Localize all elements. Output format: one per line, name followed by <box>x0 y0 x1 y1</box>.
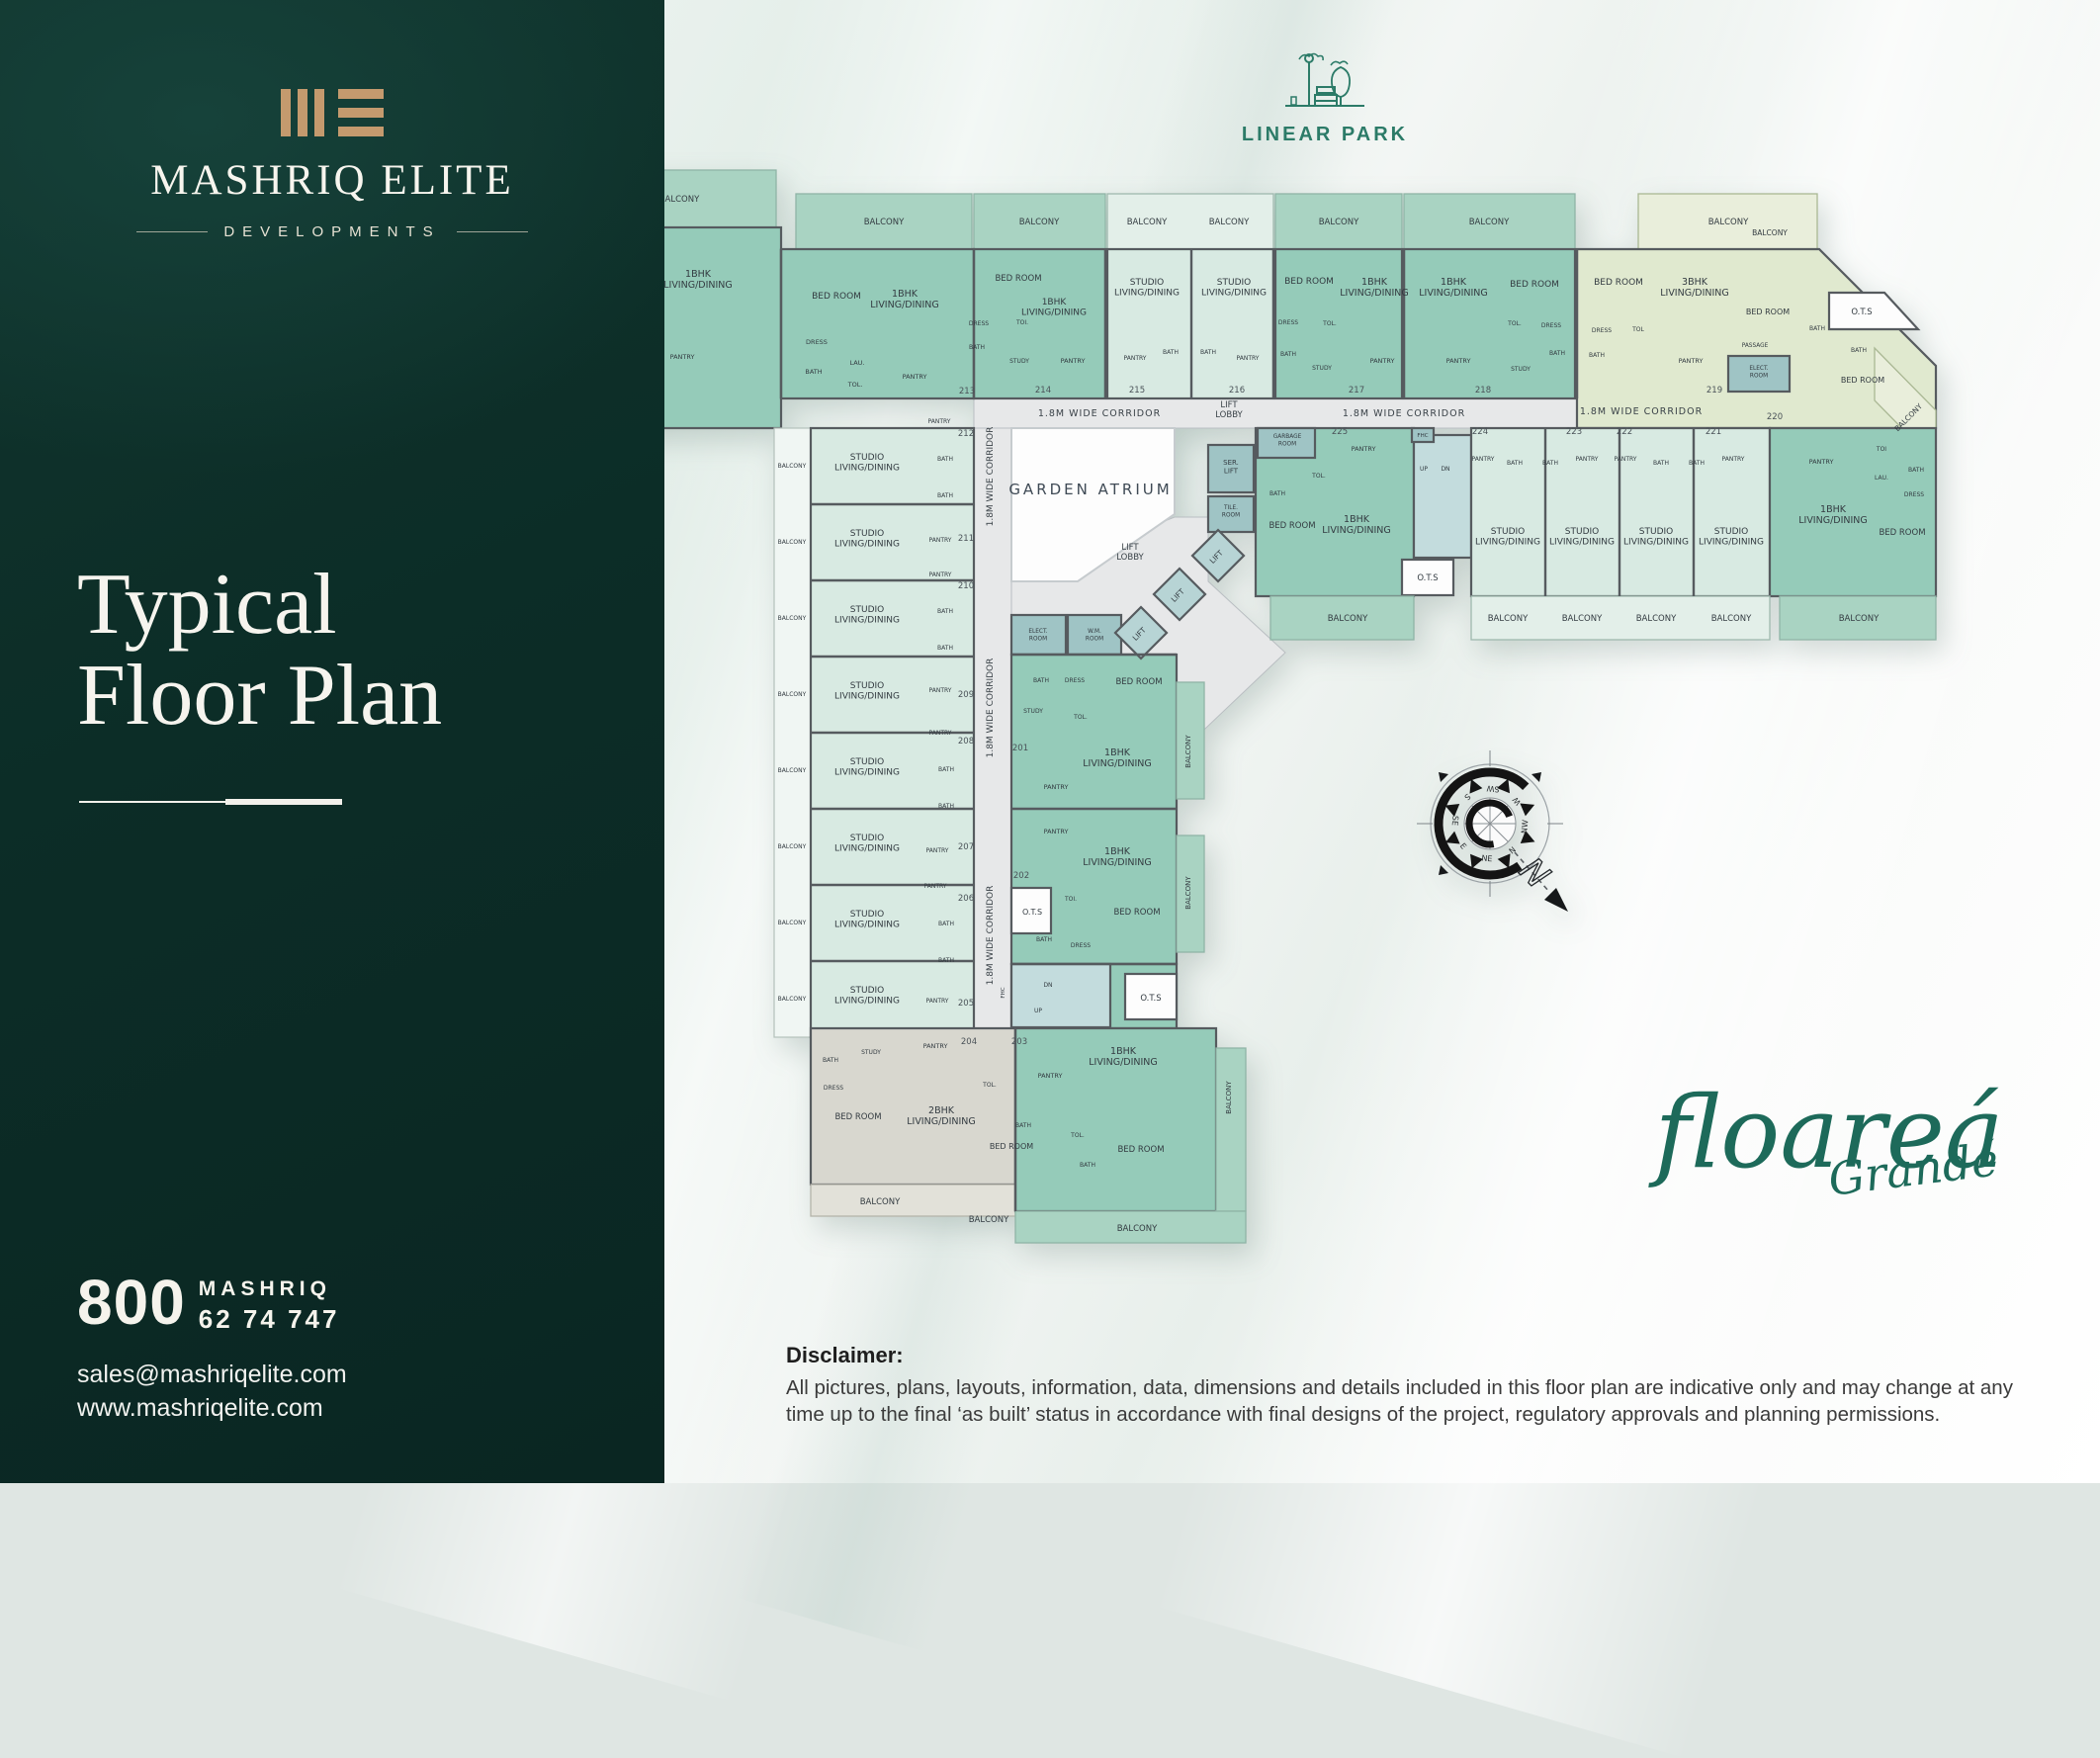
stairs <box>1011 964 1110 1027</box>
plan-label: BATH <box>1589 352 1605 359</box>
plan-label: PANTRY <box>1576 456 1599 463</box>
plan-label: BALCONY <box>1488 614 1529 624</box>
compass-direction: SW <box>1486 784 1500 794</box>
plan-label: PANTRY <box>1472 456 1495 463</box>
plan-label: BATH <box>1809 325 1825 332</box>
plan-label: BALCONY <box>778 920 807 926</box>
unit-213 <box>781 249 974 398</box>
plan-label: PANTRY <box>1124 355 1147 362</box>
compass-direction: E <box>1458 841 1468 851</box>
plan-label: BALCONY <box>1209 218 1250 227</box>
plan-label: BALCONY <box>659 195 700 205</box>
balcony <box>811 1185 1015 1216</box>
plan-label: TOL. <box>982 1082 997 1089</box>
plan-label: BALCONY <box>778 843 807 850</box>
plan-label: BALCONY <box>778 463 807 470</box>
unit-number: 208 <box>958 737 974 747</box>
plan-label: BALCONY <box>1752 228 1788 237</box>
unit-number: 218 <box>1475 386 1491 396</box>
unit-number: 214 <box>1035 386 1051 396</box>
plan-label: PANTRY <box>1446 357 1471 365</box>
linear-park-label: LINEAR PARK <box>1224 124 1426 146</box>
plan-label: BED ROOM <box>1284 277 1334 287</box>
plan-label: BED ROOM <box>1269 521 1315 531</box>
plan-label: TOL <box>1631 326 1644 333</box>
unit-number: 223 <box>1566 427 1582 437</box>
plan-label: STUDY <box>1511 366 1531 373</box>
plan-label: PANTRY <box>929 687 952 694</box>
plan-label: BALCONY <box>778 996 807 1003</box>
unit-number: 220 <box>1767 412 1783 422</box>
compass-rose-icon: NNEESESSWWNW N <box>1417 750 1568 912</box>
phone-number-large: 800 <box>77 1274 186 1332</box>
plan-label: BATH <box>937 608 953 615</box>
brand-logo <box>0 87 664 143</box>
service-elect <box>1011 615 1066 655</box>
plan-label: UP <box>1034 1008 1042 1014</box>
unit-number: 202 <box>1013 871 1029 881</box>
plan-label: ELECT.ROOM <box>1028 629 1047 642</box>
plan-label: TOL. <box>847 381 863 389</box>
plan-label: DRESS <box>824 1085 843 1092</box>
unit-number: 209 <box>958 690 974 700</box>
unit-number: 225 <box>1332 427 1348 437</box>
plan-label: TOI. <box>1015 319 1028 326</box>
disclaimer-heading: Disclaimer: <box>786 1343 2040 1368</box>
plan-label: O.T.S <box>1140 994 1161 1004</box>
unit-number: 201 <box>1012 744 1028 753</box>
plan-label: PANTRY <box>923 1042 948 1050</box>
plan-label: BED ROOM <box>1113 908 1160 918</box>
plan-label: BALCONY <box>860 1197 901 1207</box>
phone-digits: 62 74 747 <box>199 1304 340 1335</box>
plan-label: DRESS <box>1065 677 1085 684</box>
plan-label: PANTRY <box>1809 458 1834 466</box>
plan-label: BATH <box>1163 349 1179 356</box>
north-label: N <box>1512 850 1557 896</box>
plan-label: BATH <box>937 456 953 463</box>
plan-label: BATH <box>969 344 985 351</box>
plan-label: BATH <box>1033 677 1049 684</box>
plan-label: BATH <box>938 803 954 810</box>
plan-label: PANTRY <box>928 418 951 425</box>
plan-label: BED ROOM <box>1510 280 1559 290</box>
tagline-rule-right <box>457 231 528 232</box>
phone-block: 800 MASHRIQ 62 74 747 <box>77 1274 339 1335</box>
plan-label: STUDY <box>1312 365 1332 372</box>
unit-number: 213 <box>959 387 975 396</box>
plan-label: BED ROOM <box>1117 1145 1164 1155</box>
plan-label: DRESS <box>806 338 828 346</box>
page-title-line2: Floor Plan <box>77 651 442 742</box>
plan-label: BALCONY <box>1319 218 1359 227</box>
plan-label: PANTRY <box>926 847 949 854</box>
plan-label: BALCONY <box>1328 614 1368 624</box>
plan-label: PANTRY <box>926 998 949 1005</box>
page-title: Typical Floor Plan <box>77 560 442 741</box>
floor-plan-brochure: { "brand": {"name": "MASHRIQ ELITE", "ta… <box>0 0 2100 1483</box>
plan-label: DRESS <box>969 320 989 327</box>
plan-label: BALCONY <box>1184 876 1192 910</box>
plan-label: BATH <box>938 957 954 964</box>
sidebar: MASHRIQ ELITE DEVELOPMENTS Typical Floor… <box>0 0 664 1483</box>
page-title-line1: Typical <box>77 560 442 651</box>
unit-number: 204 <box>961 1037 977 1047</box>
title-underline <box>79 797 342 807</box>
plan-label: BED ROOM <box>995 274 1041 284</box>
contact-website: www.mashriqelite.com <box>77 1394 323 1423</box>
brand-tagline-text: DEVELOPMENTS <box>223 223 440 240</box>
plan-label: PANTRY <box>670 353 695 361</box>
plan-label: PANTRY <box>1722 456 1745 463</box>
plan-label: BALCONY <box>864 218 905 227</box>
plan-label: BED ROOM <box>834 1112 881 1122</box>
plan-label: BALCONY <box>1636 614 1677 624</box>
unit-number: 219 <box>1706 386 1722 396</box>
plan-label: UP <box>1420 466 1428 473</box>
plan-label: PANTRY <box>1061 357 1086 365</box>
plan-label: PANTRY <box>1038 1072 1063 1080</box>
plan-label: PANTRY <box>1370 357 1395 365</box>
plan-label: DRESS <box>1541 322 1561 329</box>
plan-label: BATH <box>1549 350 1565 357</box>
unit-number: 205 <box>958 999 974 1009</box>
plan-label: DRESS <box>1278 319 1298 326</box>
garden-atrium-label: GARDEN ATRIUM <box>1008 481 1172 498</box>
plan-label: BATH <box>1542 460 1558 467</box>
park-icon <box>1279 49 1370 115</box>
plan-label: BALCONY <box>1469 218 1510 227</box>
plan-label: STUDY <box>1009 358 1029 365</box>
plan-label: 1.8M WIDE CORRIDOR <box>986 886 996 986</box>
plan-label: TOI <box>1876 446 1886 453</box>
plan-label: PANTRY <box>1044 828 1069 835</box>
contact-email: sales@mashriqelite.com <box>77 1361 347 1389</box>
plan-label: PASSAGE <box>1742 343 1769 349</box>
brand-name: MASHRIQ ELITE <box>0 156 664 205</box>
plan-label: BATH <box>1280 351 1296 358</box>
plan-label: BATH <box>1507 460 1523 467</box>
plan-label: BATH <box>1908 467 1924 474</box>
plan-label: BALCONY <box>1711 614 1752 624</box>
plan-label: BATH <box>1200 349 1216 356</box>
plan-label: BALCONY <box>778 691 807 698</box>
plan-label: BATH <box>1653 460 1669 467</box>
plan-label: BALCONY <box>1562 614 1603 624</box>
plan-label: 1.8M WIDE CORRIDOR <box>1343 408 1465 419</box>
linear-park-badge: LINEAR PARK <box>1224 49 1426 146</box>
plan-label: 1.8M WIDE CORRIDOR <box>986 427 996 527</box>
unit-number: 224 <box>1472 427 1488 437</box>
plan-label: PANTRY <box>1237 355 1260 362</box>
plan-label: 1.8M WIDE CORRIDOR <box>1038 408 1161 419</box>
unit-214 <box>974 249 1105 398</box>
plan-label: TOL. <box>1073 714 1088 721</box>
unit-number: 215 <box>1129 386 1145 396</box>
plan-label: PANTRY <box>929 537 952 544</box>
plan-label: BALCONY <box>1019 218 1060 227</box>
plan-label: ELECT.ROOM <box>1749 366 1768 379</box>
plan-label: BATH <box>1689 460 1705 467</box>
plan-label: BATH <box>937 645 953 652</box>
ots <box>1829 293 1918 329</box>
plan-label: BALCONY <box>1225 1081 1233 1114</box>
plan-label: TOL. <box>1507 320 1522 327</box>
tagline-rule-left <box>136 231 208 232</box>
plan-label: FHC <box>1417 433 1428 439</box>
compass-direction: NW <box>1520 820 1530 835</box>
plan-label: DN <box>1441 466 1449 473</box>
plan-label: BALCONY <box>1184 735 1192 768</box>
plan-label: DRESS <box>1071 942 1091 949</box>
plan-label: BALCONY <box>778 539 807 546</box>
plan-label: BED ROOM <box>812 292 861 302</box>
unit-number: 206 <box>958 894 974 904</box>
plan-label: BED ROOM <box>1115 677 1162 687</box>
plan-label: BALCONY <box>1117 1224 1158 1234</box>
unit-number: 207 <box>958 842 974 852</box>
brand-logo-icon <box>281 87 384 138</box>
disclaimer: Disclaimer: All pictures, plans, layouts… <box>786 1343 2040 1428</box>
plan-label: O.T.S <box>1022 908 1042 917</box>
plan-label: LAU. <box>1875 475 1888 482</box>
plan-label: PANTRY <box>1615 456 1637 463</box>
plan-label: TOL. <box>1322 320 1337 327</box>
plan-label: TOI. <box>1064 896 1077 903</box>
unit-number: 212 <box>958 429 974 439</box>
unit-number: 217 <box>1349 386 1364 396</box>
project-logo: floareá Grandé <box>1602 1084 2056 1206</box>
plan-label: FHC <box>1001 987 1006 998</box>
plan-label: DN <box>1043 982 1052 989</box>
unit-number: 203 <box>1011 1037 1027 1047</box>
plan-label: BATH <box>938 921 954 927</box>
plan-label: BATH <box>1851 347 1867 354</box>
plan-label: STUDY <box>1023 708 1043 715</box>
plan-label: BALCONY <box>778 767 807 774</box>
compass-direction: S <box>1462 792 1472 802</box>
plan-label: TILE.ROOM <box>1222 505 1240 518</box>
plan-label: BALCONY <box>778 615 807 622</box>
plan-label: O.T.S <box>1417 573 1438 583</box>
plan-label: DRESS <box>1904 491 1924 498</box>
plan-label: BED ROOM <box>1746 308 1790 316</box>
balcony <box>1216 1048 1246 1211</box>
unit-number: 211 <box>958 534 974 544</box>
plan-label: PANTRY <box>929 730 952 737</box>
plan-label: BED ROOM <box>1879 528 1925 538</box>
plan-label: BATH <box>823 1057 838 1064</box>
plan-label: LAU. <box>849 359 864 367</box>
unit-220 <box>1770 428 1936 596</box>
plan-label: PANTRY <box>903 373 927 381</box>
plan-label: BATH <box>1036 936 1052 943</box>
phone-word: MASHRIQ <box>199 1277 340 1301</box>
north-arrowhead <box>1544 888 1568 912</box>
plan-label: BALCONY <box>969 1215 1009 1225</box>
plan-label: BATH <box>1080 1162 1095 1169</box>
plan-label: STUDY <box>861 1049 881 1056</box>
unit-number: 216 <box>1229 386 1245 396</box>
disclaimer-body: All pictures, plans, layouts, informatio… <box>786 1374 2040 1428</box>
plan-label: TOL. <box>1070 1132 1085 1139</box>
plan-label: BATH <box>937 492 953 499</box>
plan-label: BATH <box>938 766 954 773</box>
unit-number: 210 <box>958 581 974 591</box>
plan-label: BATH <box>1269 490 1285 497</box>
plan-label: PANTRY <box>929 571 952 578</box>
plan-label: BED ROOM <box>1594 278 1643 288</box>
plan-label: BED ROOM <box>1841 376 1884 385</box>
compass-direction: SE <box>1450 815 1460 826</box>
plan-label: DRESS <box>1592 327 1612 334</box>
plan-label: 1.8M WIDE CORRIDOR <box>986 659 996 758</box>
unit-number: 222 <box>1617 427 1632 437</box>
plan-label: O.T.S <box>1851 308 1872 317</box>
plan-label: PANTRY <box>1044 783 1069 791</box>
plan-label: BATH <box>805 368 822 376</box>
plan-label: PANTRY <box>1352 445 1376 453</box>
plan-label: TOL. <box>1311 473 1326 480</box>
plan-label: BALCONY <box>1127 218 1168 227</box>
compass-direction: NE <box>1481 853 1493 863</box>
plan-label: SER.LIFT <box>1223 459 1239 476</box>
plan-label: BALCONY <box>1839 614 1880 624</box>
unit-204-2bhk <box>811 1028 1015 1185</box>
plan-label: 1.8M WIDE CORRIDOR <box>1580 406 1703 417</box>
plan-label: BALCONY <box>1708 218 1749 227</box>
stairs <box>1414 435 1471 558</box>
brand-tagline: DEVELOPMENTS <box>0 223 664 240</box>
plan-label: BATH <box>1015 1122 1031 1129</box>
unit-number: 221 <box>1706 427 1721 437</box>
service-wm <box>1068 615 1121 655</box>
plan-label: PANTRY <box>1679 357 1704 365</box>
balcony-strip-left <box>774 428 811 1037</box>
plan-label: W.M.ROOM <box>1086 629 1103 642</box>
plan-label: BED ROOM <box>990 1142 1033 1151</box>
plan-label: PANTRY <box>924 883 947 890</box>
